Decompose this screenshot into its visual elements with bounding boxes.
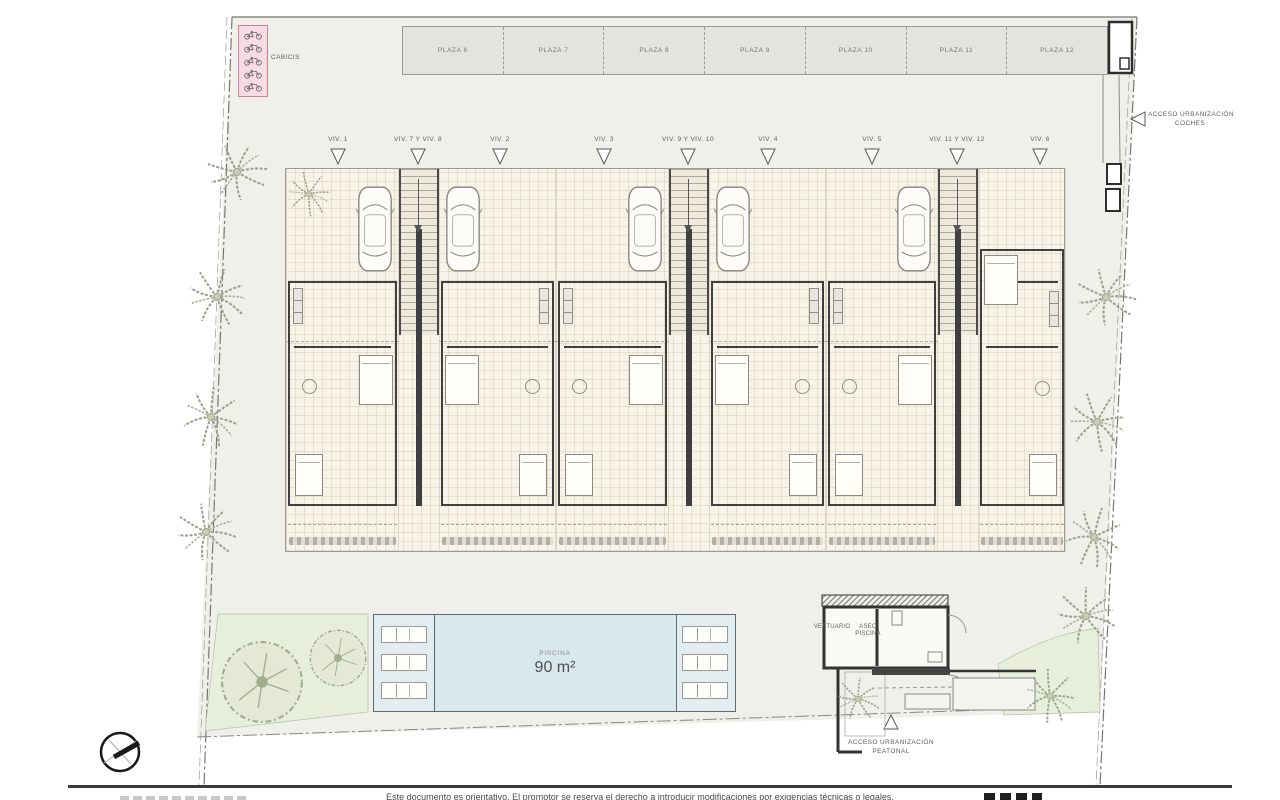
garden-left <box>205 614 368 731</box>
bike-icon <box>242 82 264 92</box>
unit-label-viv7-8: VIV. 7 Y VIV. 8 <box>394 136 442 143</box>
hedge <box>559 537 666 545</box>
table <box>302 379 317 394</box>
unit-label-viv4: VIV. 4 <box>758 136 778 143</box>
unit-label-viv1: VIV. 1 <box>328 136 348 143</box>
sun-lounger <box>682 626 728 643</box>
sun-lounger <box>381 626 427 643</box>
car-icon <box>626 183 664 275</box>
dwelling-viv3 <box>556 169 669 551</box>
bed <box>984 255 1018 305</box>
parking-space: PLAZA 7 <box>503 27 604 74</box>
garden-trees <box>222 630 366 722</box>
apartment <box>711 281 824 506</box>
sun-lounger <box>381 682 427 699</box>
parking-band: PLAZA 6 PLAZA 7 PLAZA 8 PLAZA 9 PLAZA 10… <box>402 26 1108 75</box>
unit-label-viv9-10: VIV. 9 Y VIV. 10 <box>662 136 714 143</box>
disclaimer-text: Este documento es orientativo. El promot… <box>0 792 1280 800</box>
parking-space: PLAZA 10 <box>805 27 906 74</box>
unit-label-viv6: VIV. 6 <box>1030 136 1050 143</box>
bed <box>295 454 323 496</box>
parking-space: PLAZA 12 <box>1006 27 1107 74</box>
hedge <box>442 537 553 545</box>
apartment <box>828 281 936 506</box>
building-block-2 <box>556 169 826 551</box>
bed <box>519 454 547 496</box>
bed <box>445 355 479 405</box>
compass-icon <box>101 733 139 771</box>
bike-icon <box>242 69 264 79</box>
pool-house <box>822 595 1036 752</box>
bed <box>898 355 932 405</box>
dwelling-viv5 <box>826 169 938 551</box>
dwelling-viv6 <box>978 169 1066 551</box>
unit-arrows <box>331 149 1047 164</box>
table <box>1035 381 1050 396</box>
access-cars-label: ACCESO URBANIZACIÓN COCHES <box>1148 110 1232 128</box>
access-cars-arrow-icon <box>1131 112 1145 126</box>
sun-lounger <box>682 654 728 671</box>
unit-label-viv2: VIV. 2 <box>490 136 510 143</box>
stair-core <box>399 169 439 551</box>
parking-space: PLAZA 6 <box>403 27 503 74</box>
hedge <box>289 537 396 545</box>
apartment <box>558 281 667 506</box>
stair-core <box>938 169 978 551</box>
table <box>795 379 810 394</box>
pool-toilet-label: ASEO PISCINA <box>846 624 890 638</box>
apartment <box>441 281 554 506</box>
parking-space: PLAZA 8 <box>603 27 704 74</box>
bed <box>629 355 663 405</box>
bike-icon <box>242 43 264 53</box>
car-icon <box>714 183 752 275</box>
site-plan: CABICIS PLAZA 6 PLAZA 7 PLAZA 8 PLAZA 9 … <box>0 0 1280 800</box>
unit-label-viv3: VIV. 3 <box>594 136 614 143</box>
bike-storage-box <box>238 25 268 97</box>
bike-icon <box>242 30 264 40</box>
car-icon <box>444 183 482 275</box>
bike-icon <box>242 56 264 66</box>
boundary-right <box>1100 17 1137 786</box>
unit-label-viv11-12: VIV. 11 Y VIV. 12 <box>929 136 984 143</box>
bed <box>715 355 749 405</box>
garden-right <box>998 628 1100 715</box>
hedge <box>829 537 935 545</box>
bed <box>789 454 817 496</box>
dwelling-viv2 <box>439 169 556 551</box>
pool-area-value: 90 m² <box>535 659 576 677</box>
unit-label-viv5: VIV. 5 <box>862 136 882 143</box>
bed <box>359 355 393 405</box>
table <box>572 379 587 394</box>
bed <box>565 454 593 496</box>
parking-space: PLAZA 9 <box>704 27 805 74</box>
sun-lounger <box>381 654 427 671</box>
pool-label: PISCINA <box>539 650 571 657</box>
bed <box>1029 454 1057 496</box>
sun-lounger <box>682 682 728 699</box>
dwelling-viv1 <box>286 169 399 551</box>
car-icon <box>356 183 394 275</box>
hedge <box>712 537 823 545</box>
hedge <box>981 537 1063 545</box>
bed <box>835 454 863 496</box>
titleblock-top-rule <box>68 785 1232 788</box>
parking-space: PLAZA 11 <box>906 27 1007 74</box>
access-pedestrian-label: ACCESO URBANIZACIÓN PEATONAL <box>845 738 937 756</box>
building-block-3 <box>826 169 1066 551</box>
access-pedestrian-arrow-icon <box>884 715 898 729</box>
table <box>842 379 857 394</box>
table <box>525 379 540 394</box>
building <box>285 168 1065 552</box>
boundary-left <box>204 17 232 786</box>
apartment <box>980 249 1064 506</box>
stair-core <box>669 169 709 551</box>
apartment <box>288 281 397 506</box>
dwelling-viv4 <box>709 169 826 551</box>
building-block-1 <box>286 169 556 551</box>
bike-storage-label: CABICIS <box>271 54 300 61</box>
car-icon <box>895 183 933 275</box>
